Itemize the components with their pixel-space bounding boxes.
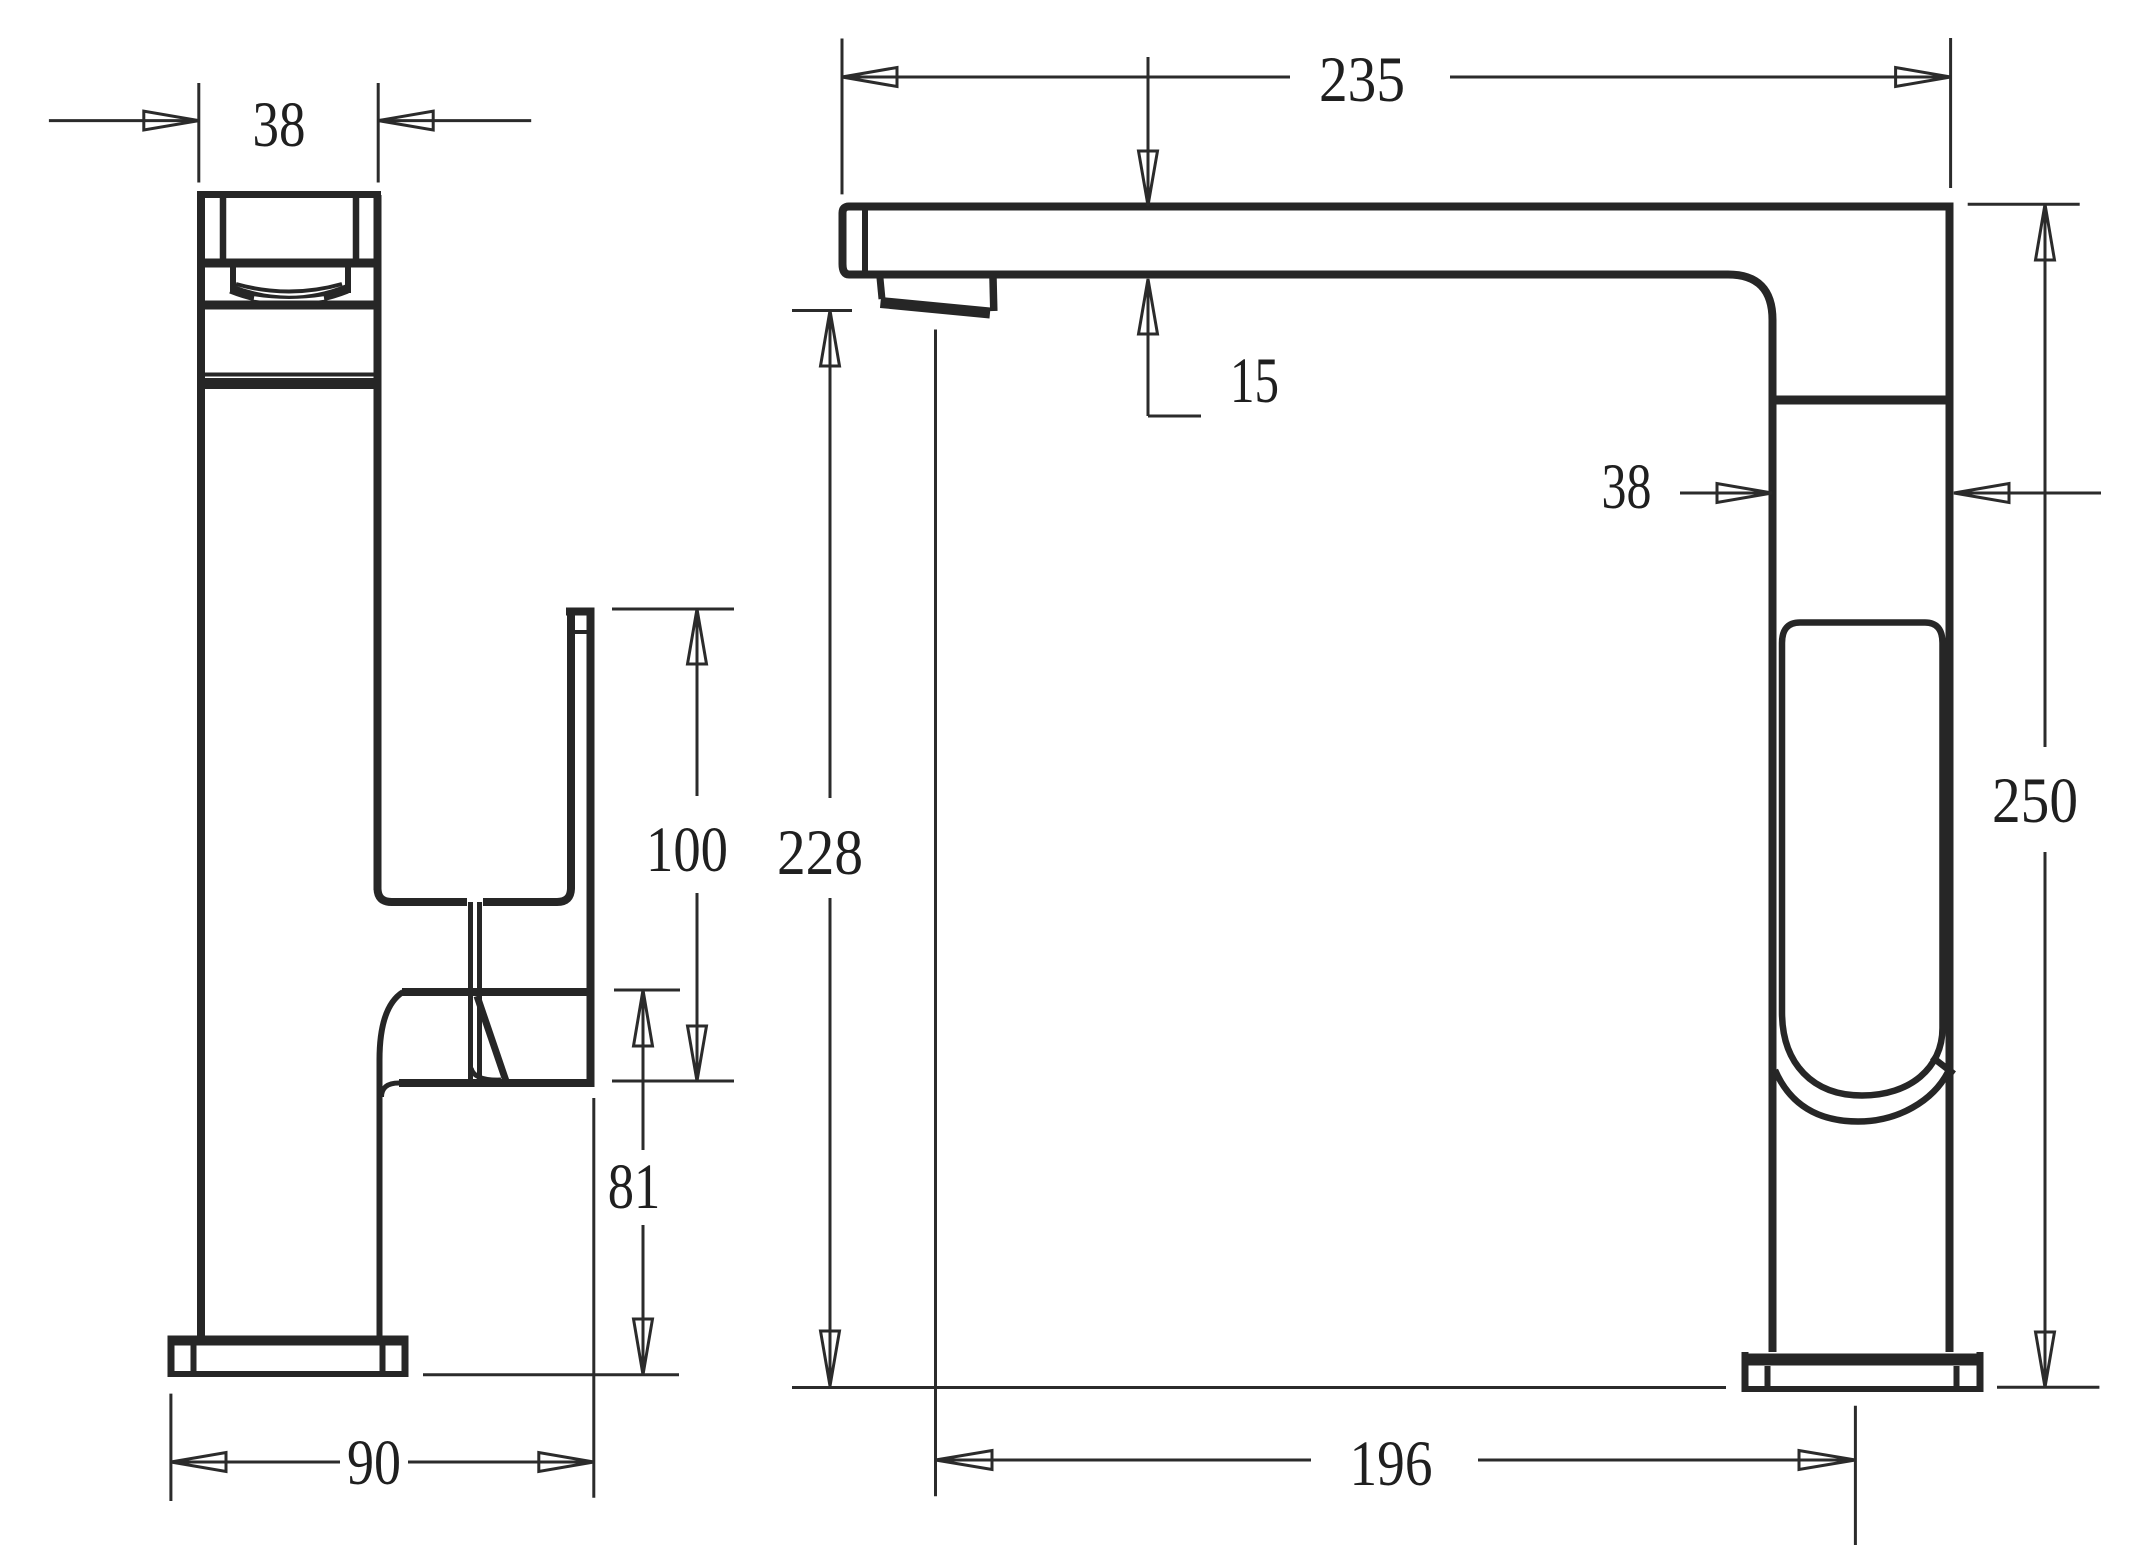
svg-text:250: 250 [1992,765,2078,837]
svg-text:38: 38 [253,89,306,161]
svg-text:100: 100 [646,814,728,886]
svg-text:15: 15 [1230,345,1279,417]
svg-text:81: 81 [608,1151,661,1223]
svg-text:235: 235 [1319,44,1405,116]
svg-text:196: 196 [1350,1428,1433,1500]
svg-text:228: 228 [777,817,863,889]
svg-text:90: 90 [347,1427,401,1499]
svg-text:38: 38 [1602,451,1652,523]
